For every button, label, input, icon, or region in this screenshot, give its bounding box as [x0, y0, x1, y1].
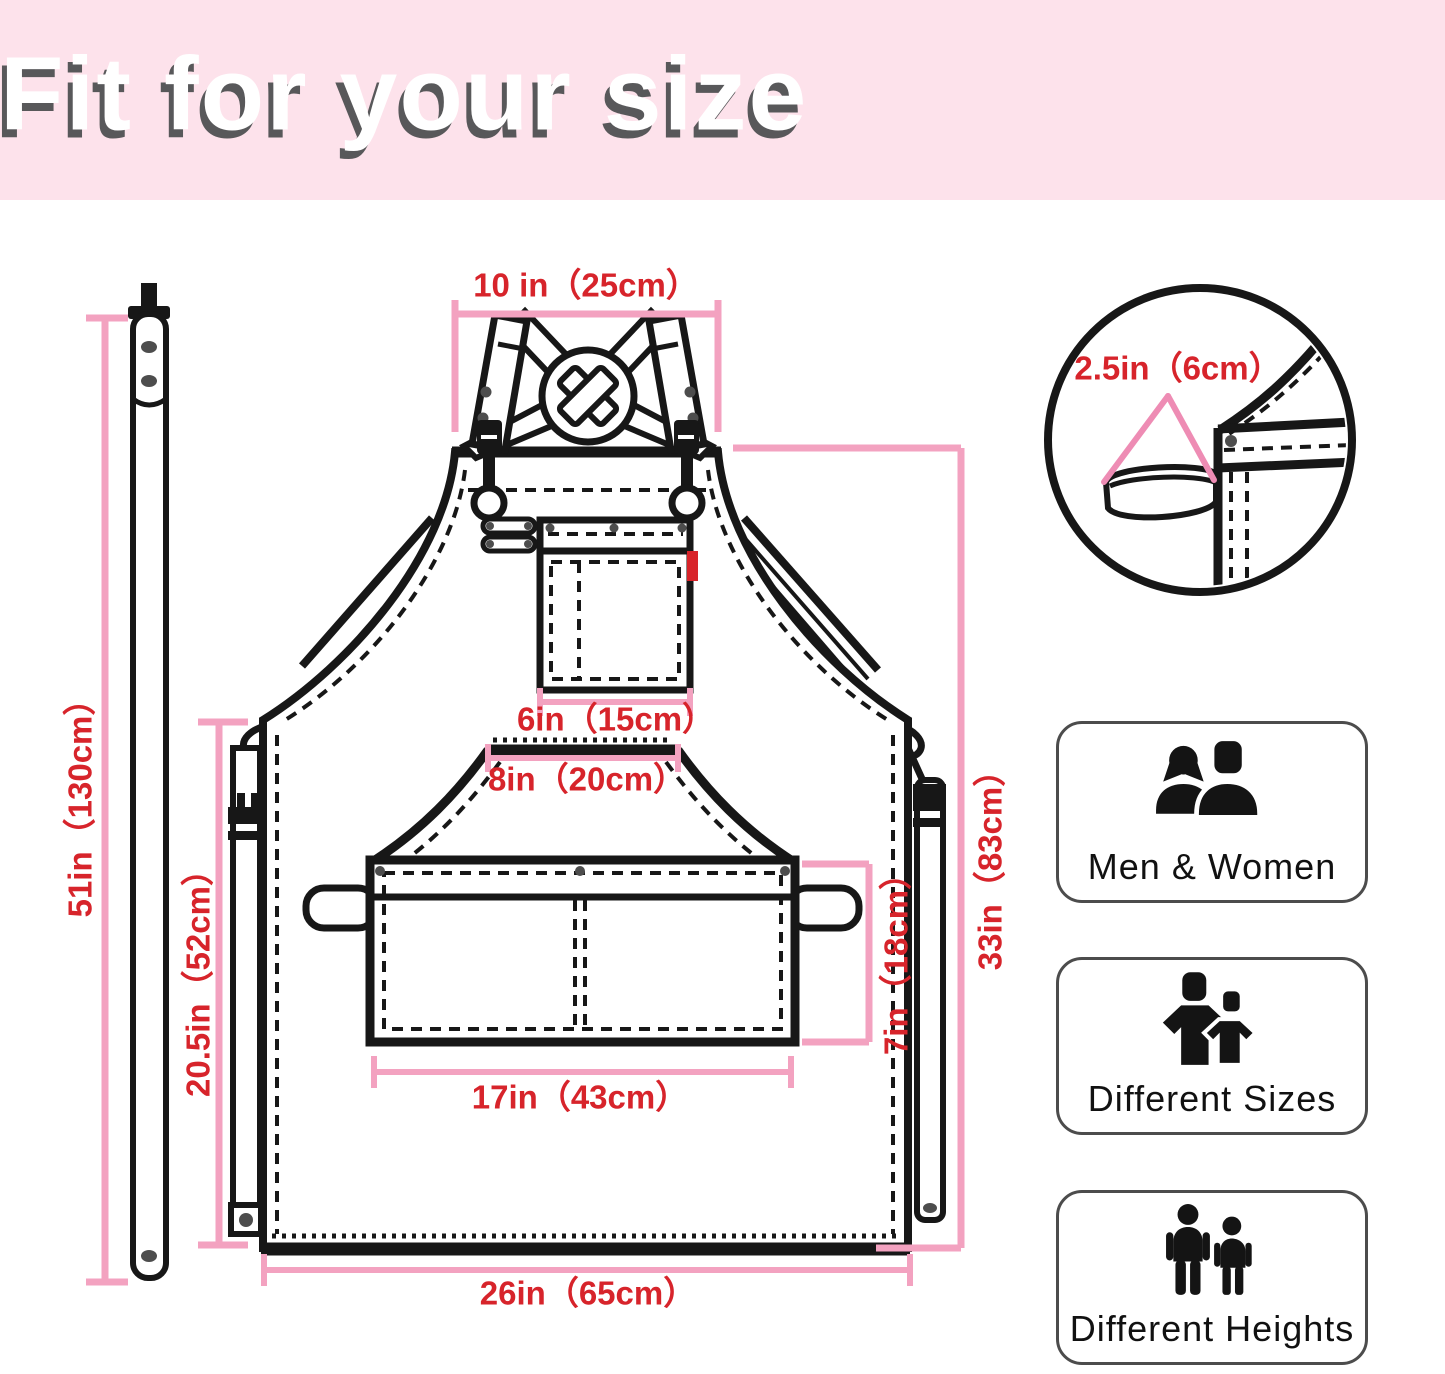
dim-waist-pocket-opening: 8in（20cm）: [488, 763, 686, 796]
feature-label: Men & Women: [1059, 846, 1365, 888]
dim-apron-length: 33in（83cm）: [974, 754, 1007, 970]
dim-waist-strap-length: 51in（130cm）: [64, 683, 97, 918]
feature-label: Different Heights: [1059, 1308, 1365, 1350]
brand-tag: [687, 551, 698, 581]
dim-front-pocket-height: 7in（18cm）: [880, 857, 913, 1055]
feature-label: Different Sizes: [1059, 1078, 1365, 1120]
different-sizes-icon: [1149, 970, 1275, 1066]
dim-front-pocket-width: 17in（43cm）: [472, 1081, 688, 1114]
waist-strap-drawing: [128, 283, 170, 1278]
towel-loop-drawing: [1106, 467, 1216, 517]
men-women-icon: [1146, 734, 1278, 834]
button-strips: [483, 519, 535, 551]
dim-towel-loop: 2.5in（6cm）: [1074, 352, 1281, 385]
feature-different-sizes: Different Sizes: [1056, 957, 1368, 1135]
infographic-page: Fit for your size: [0, 0, 1445, 1374]
left-grommet: [474, 488, 504, 518]
dim-neck-width: 10 in（25cm）: [473, 269, 699, 302]
dim-side-strap-length: 20.5in（52cm）: [182, 853, 215, 1097]
dim-bottom-width: 26in（65cm）: [480, 1277, 696, 1310]
apron-diagram: [0, 0, 1445, 1374]
right-grommet: [672, 488, 702, 518]
dim-chest-pocket-width: 6in（15cm）: [517, 703, 715, 736]
feature-different-heights: Different Heights: [1056, 1190, 1368, 1365]
feature-men-women: Men & Women: [1056, 721, 1368, 903]
loop-detail-circle: [1048, 288, 1354, 592]
front-pocket: [306, 860, 859, 1042]
different-heights-icon: [1151, 1203, 1273, 1297]
